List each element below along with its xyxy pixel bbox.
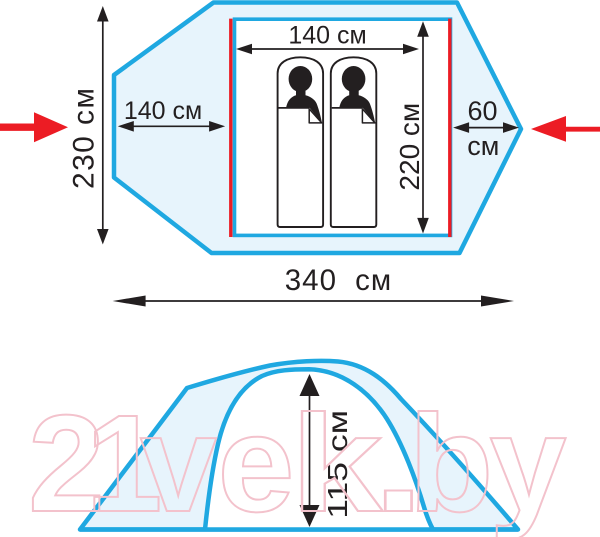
svg-text:140 см: 140 см xyxy=(124,97,202,125)
svg-text:y: y xyxy=(490,387,567,537)
svg-text:e: e xyxy=(218,387,295,537)
svg-text:см: см xyxy=(467,131,499,161)
svg-text:230 см: 230 см xyxy=(67,87,100,189)
svg-text:60: 60 xyxy=(467,96,497,126)
svg-text:220 см: 220 см xyxy=(394,103,425,191)
svg-text:140 см: 140 см xyxy=(288,22,366,50)
svg-text:k: k xyxy=(290,387,382,537)
svg-text:v: v xyxy=(140,387,217,537)
svg-text:340 см: 340 см xyxy=(285,264,392,297)
svg-text:b: b xyxy=(409,387,493,537)
